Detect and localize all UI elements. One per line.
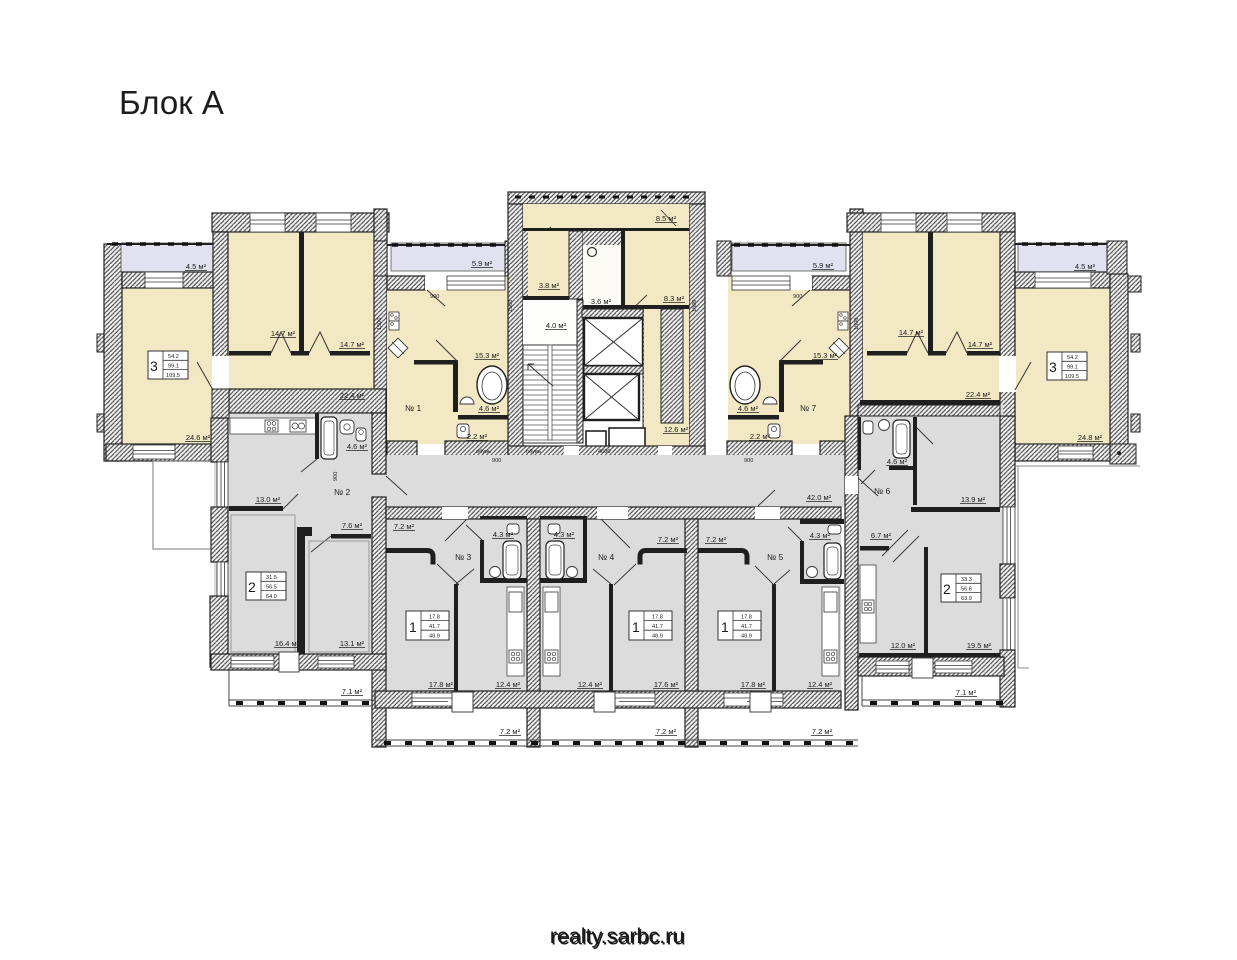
svg-text:4.3 м²: 4.3 м² — [810, 531, 831, 540]
svg-text:900: 900 — [333, 472, 339, 481]
svg-text:42.0 м²: 42.0 м² — [807, 493, 832, 502]
svg-text:41.7: 41.7 — [741, 624, 752, 630]
svg-text:2: 2 — [943, 581, 951, 597]
svg-text:33.3: 33.3 — [961, 577, 972, 583]
svg-text:41.7: 41.7 — [429, 624, 440, 630]
svg-text:№ 1: № 1 — [405, 403, 421, 413]
svg-text:1: 1 — [632, 619, 640, 635]
svg-text:8.3 м²: 8.3 м² — [664, 294, 685, 303]
svg-text:14.7 м²: 14.7 м² — [899, 328, 924, 337]
svg-text:№ 4: № 4 — [598, 552, 614, 562]
svg-text:1500: 1500 — [854, 318, 860, 330]
svg-text:4.3 м²: 4.3 м² — [554, 530, 575, 539]
svg-text:1500: 1500 — [508, 300, 514, 312]
svg-text:3: 3 — [1049, 359, 1057, 375]
svg-text:3: 3 — [150, 358, 158, 374]
svg-text:22.4 м²: 22.4 м² — [966, 390, 991, 399]
svg-text:48.9: 48.9 — [429, 634, 440, 640]
svg-text:№ 6: № 6 — [874, 486, 890, 496]
svg-text:4.6 м²: 4.6 м² — [479, 404, 500, 413]
svg-text:31.5: 31.5 — [266, 575, 277, 581]
svg-text:17.8 м²: 17.8 м² — [429, 680, 454, 689]
svg-text:3.6 м²: 3.6 м² — [591, 297, 612, 306]
svg-text:14.7 м²: 14.7 м² — [271, 329, 296, 338]
svg-text:99.1: 99.1 — [168, 364, 179, 370]
svg-text:12.4 м²: 12.4 м² — [578, 680, 603, 689]
svg-text:64.0: 64.0 — [266, 594, 277, 600]
svg-text:13.1 м²: 13.1 м² — [340, 639, 365, 648]
svg-text:№ 3: № 3 — [455, 552, 471, 562]
svg-text:900: 900 — [744, 458, 753, 464]
svg-text:56.6: 56.6 — [961, 587, 972, 593]
svg-text:7.2 м²: 7.2 м² — [658, 535, 679, 544]
svg-text:1: 1 — [721, 619, 729, 635]
svg-text:13.9 м²: 13.9 м² — [961, 495, 986, 504]
svg-text:4.0 м²: 4.0 м² — [546, 321, 567, 330]
svg-text:13.0 м²: 13.0 м² — [256, 495, 281, 504]
svg-text:№ 2: № 2 — [334, 487, 350, 497]
svg-text:обувь: обувь — [476, 449, 491, 455]
svg-text:7.2 м²: 7.2 м² — [394, 522, 415, 531]
svg-text:41.7: 41.7 — [652, 624, 663, 630]
svg-text:12.0 м²: 12.0 м² — [891, 641, 916, 650]
svg-text:109.5: 109.5 — [1065, 374, 1079, 380]
svg-text:1500: 1500 — [692, 300, 698, 312]
svg-text:48.9: 48.9 — [741, 634, 752, 640]
svg-text:900: 900 — [793, 294, 802, 300]
svg-text:4.6 м²: 4.6 м² — [738, 404, 759, 413]
svg-text:15.3 м²: 15.3 м² — [475, 351, 500, 360]
svg-text:17.8: 17.8 — [429, 615, 440, 621]
svg-text:5.9 м²: 5.9 м² — [813, 261, 834, 270]
svg-text:99.1: 99.1 — [1067, 365, 1078, 371]
svg-text:6.7 м²: 6.7 м² — [871, 531, 892, 540]
svg-text:2: 2 — [248, 579, 256, 595]
svg-text:14.7 м²: 14.7 м² — [340, 340, 365, 349]
svg-text:16.4 м²: 16.4 м² — [275, 639, 300, 648]
svg-text:7.2 м²: 7.2 м² — [812, 727, 833, 736]
svg-text:4.5 м²: 4.5 м² — [186, 262, 207, 271]
svg-text:109.5: 109.5 — [166, 373, 180, 379]
svg-text:4.6 м²: 4.6 м² — [887, 457, 908, 466]
svg-text:4.3 м²: 4.3 м² — [493, 530, 514, 539]
svg-text:7.1 м²: 7.1 м² — [342, 687, 363, 696]
svg-text:17.8 м²: 17.8 м² — [741, 680, 766, 689]
svg-text:900: 900 — [492, 458, 501, 464]
svg-text:12.6 м²: 12.6 м² — [664, 425, 689, 434]
svg-text:24.6 м²: 24.6 м² — [186, 433, 211, 442]
svg-text:4.5 м²: 4.5 м² — [1075, 262, 1096, 271]
svg-text:№ 5: № 5 — [767, 552, 783, 562]
svg-text:1: 1 — [409, 619, 417, 635]
svg-text:12.4 м²: 12.4 м² — [808, 680, 833, 689]
svg-text:7.2 м²: 7.2 м² — [500, 727, 521, 736]
svg-text:№ 7: № 7 — [800, 403, 816, 413]
svg-text:63.9: 63.9 — [961, 596, 972, 602]
svg-text:14.7 м²: 14.7 м² — [968, 340, 993, 349]
svg-text:56.5: 56.5 — [266, 585, 277, 591]
svg-text:48.9: 48.9 — [652, 634, 663, 640]
svg-text:обувь: обувь — [526, 449, 541, 455]
svg-text:17.8: 17.8 — [652, 615, 663, 621]
svg-text:54.2: 54.2 — [1067, 355, 1078, 361]
svg-text:1500: 1500 — [377, 318, 383, 330]
svg-text:900: 900 — [430, 294, 439, 300]
svg-text:4.6 м²: 4.6 м² — [347, 442, 368, 451]
svg-text:17.6 м²: 17.6 м² — [654, 680, 679, 689]
svg-text:3.8 м²: 3.8 м² — [539, 281, 560, 290]
svg-text:7.2 м²: 7.2 м² — [706, 535, 727, 544]
svg-text:19.5 м²: 19.5 м² — [967, 641, 992, 650]
svg-text:4600: 4600 — [598, 449, 610, 455]
svg-text:17.8: 17.8 — [741, 615, 752, 621]
svg-text:54.2: 54.2 — [168, 354, 179, 360]
svg-text:7.1 м²: 7.1 м² — [956, 688, 977, 697]
svg-text:5.9 м²: 5.9 м² — [472, 259, 493, 268]
svg-text:12.4 м²: 12.4 м² — [496, 680, 521, 689]
svg-text:15.3 м²: 15.3 м² — [813, 351, 838, 360]
svg-text:22.4 м²: 22.4 м² — [340, 391, 365, 400]
svg-text:7.6 м²: 7.6 м² — [342, 521, 363, 530]
svg-text:realty.sarbc.ru: realty.sarbc.ru — [550, 924, 685, 948]
svg-text:2.2 м²: 2.2 м² — [750, 432, 771, 441]
svg-text:7.2 м²: 7.2 м² — [656, 727, 677, 736]
svg-text:2.2 м²: 2.2 м² — [467, 432, 488, 441]
svg-text:24.8 м²: 24.8 м² — [1078, 433, 1103, 442]
svg-text:Блок А: Блок А — [119, 84, 224, 121]
